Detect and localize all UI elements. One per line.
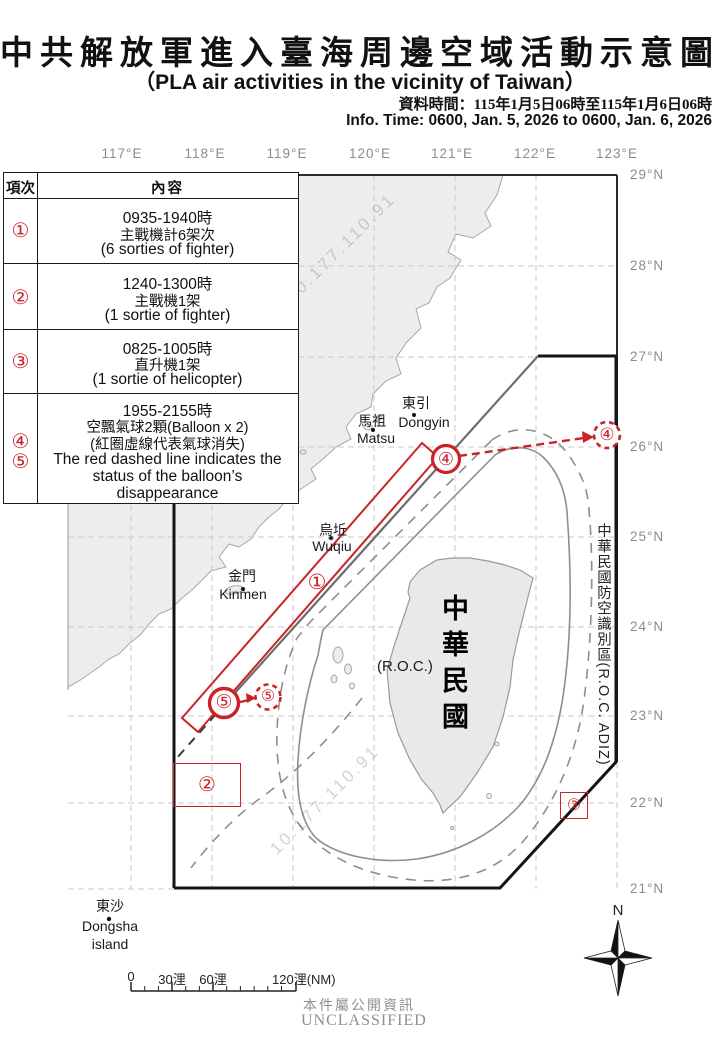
table-cell: (6 sorties of fighter) (37, 241, 298, 259)
compass-rose-icon (584, 920, 652, 996)
roc-label-zh: 中華民國 (434, 594, 473, 754)
table-cell: disappearance (37, 485, 298, 503)
place-dongyin-zh: 東引 (386, 393, 446, 413)
marker-5-dashed: ⑤ (258, 688, 278, 706)
table-row-num: ⑤ (4, 449, 37, 474)
place-wuqiu-en: Wuqiu (302, 538, 362, 554)
table-header-content: 內容 (37, 177, 298, 198)
scale-120: 120浬(NM) (272, 969, 336, 988)
adiz-label: 中華民國防空識別區(R.O.C. ADIZ) (593, 523, 614, 783)
place-matsu-zh: 馬祖 (342, 411, 402, 431)
compass-north-label: N (603, 902, 633, 919)
place-wuqiu-zh: 烏坵 (303, 520, 363, 540)
marker-2: ② (174, 764, 240, 806)
classification-label: UNCLASSIFIED (301, 1012, 427, 1030)
table-row-num: ③ (4, 349, 37, 374)
marker-3-box: ③ (560, 792, 588, 819)
marker-1: ① (305, 570, 329, 595)
table-cell: status of the balloon’s (37, 468, 298, 486)
table-cell: (1 sortie of fighter) (37, 307, 298, 325)
table-header-item: 項次 (4, 177, 37, 198)
marker-4-solid: ④ (436, 449, 456, 469)
place-matsu-en: Matsu (346, 430, 406, 446)
marker-2-box: ② (173, 763, 241, 807)
place-kinmen-en: Kinmen (213, 586, 273, 602)
taiwan-island (331, 558, 533, 830)
table-cell: (1 sortie of helicopter) (37, 371, 298, 389)
table-row-num: ② (4, 285, 37, 310)
table-row-num: ① (4, 218, 37, 243)
marker-5-solid: ⑤ (214, 693, 234, 713)
activity-table: 項次 內容 ① 0935-1940時 主戰機計6架次 (6 sorties of… (3, 172, 299, 504)
place-dongyin-en: Dongyin (394, 414, 454, 430)
pla-activity-map-page: { "header": { "title_zh": "中共解放軍進入臺海周邊空域… (0, 0, 720, 1040)
marker-4-dashed: ④ (597, 426, 617, 444)
place-dongsha-en: Dongsha (80, 918, 140, 934)
place-kinmen-zh: 金門 (212, 566, 272, 586)
place-dongsha-zh: 東沙 (80, 896, 140, 916)
marker-3: ③ (561, 793, 587, 818)
scale-60: 60浬 (188, 969, 238, 988)
roc-label-en: (R.O.C.) (377, 658, 433, 675)
place-dongsha-en2: island (80, 936, 140, 952)
table-cell: The red dashed line indicates the (37, 451, 298, 469)
scale-0: 0 (116, 969, 146, 984)
